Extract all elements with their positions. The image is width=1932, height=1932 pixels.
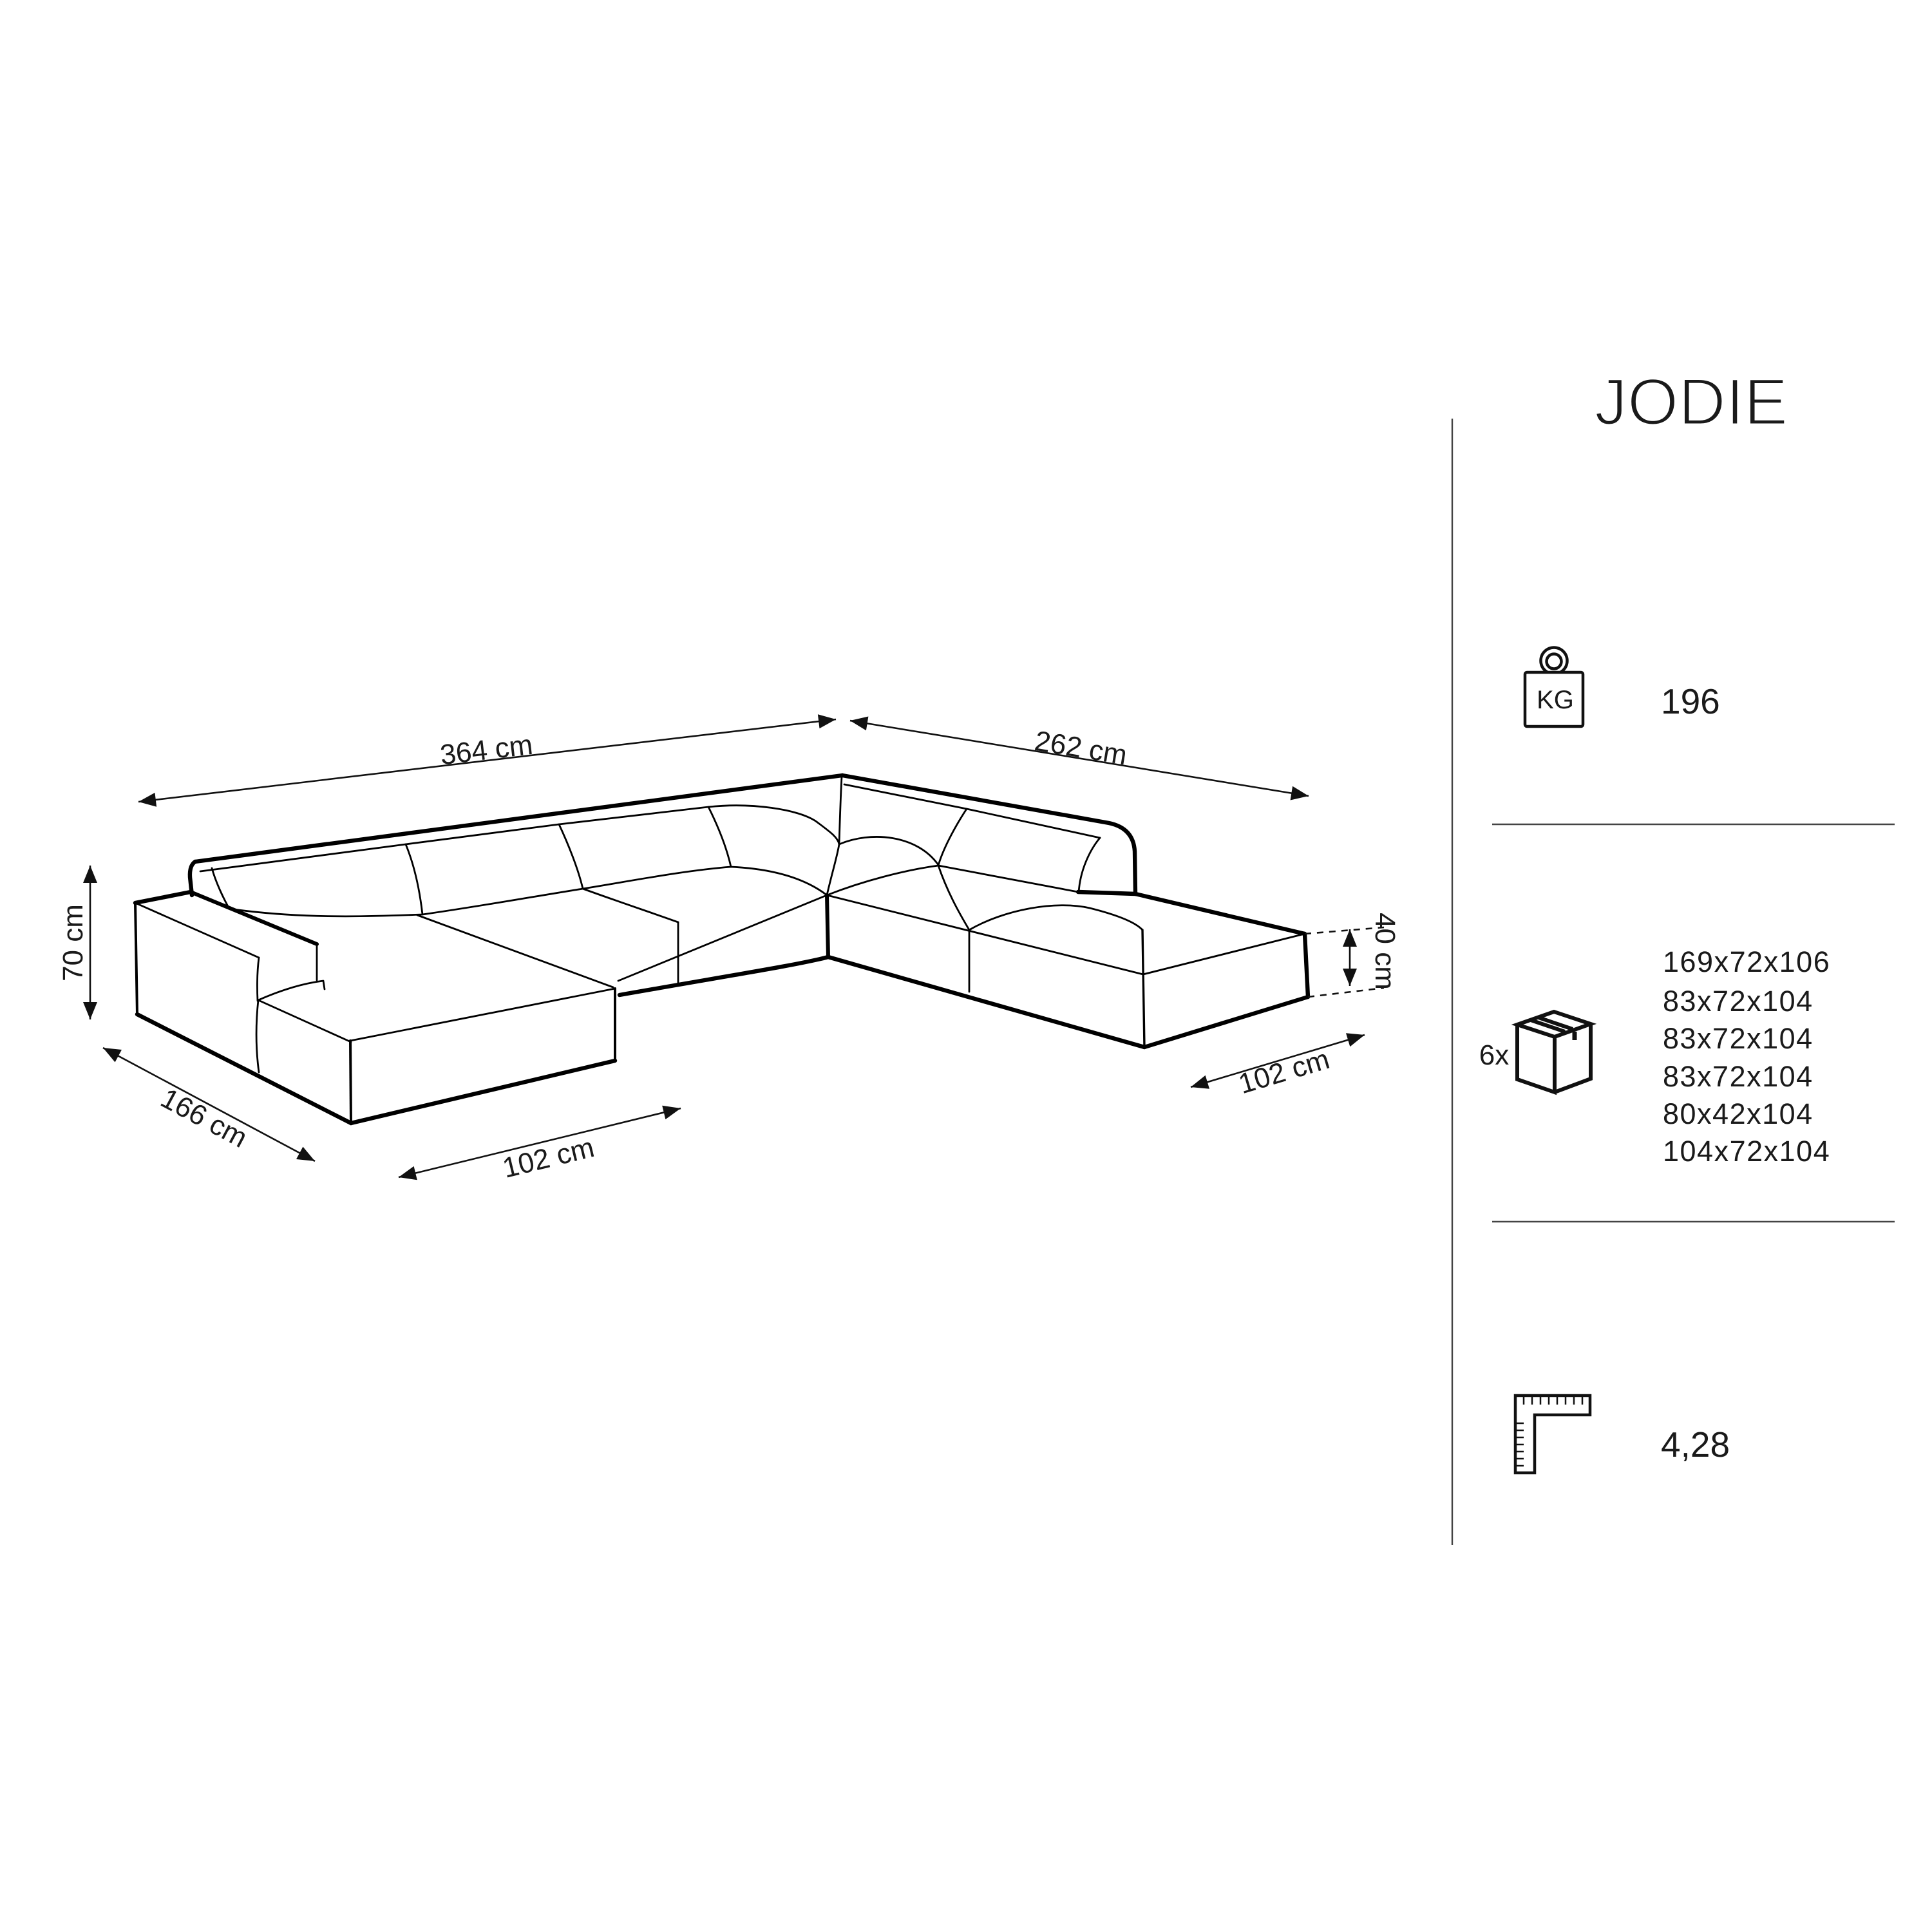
svg-text:83x72x104: 83x72x104 xyxy=(1663,1022,1814,1055)
svg-text:169x72x106: 169x72x106 xyxy=(1663,945,1830,978)
svg-text:70 cm: 70 cm xyxy=(57,904,89,981)
svg-text:KG: KG xyxy=(1537,686,1574,714)
svg-text:83x72x104: 83x72x104 xyxy=(1663,985,1814,1018)
svg-text:JODIE: JODIE xyxy=(1595,365,1788,439)
svg-text:4,28: 4,28 xyxy=(1661,1425,1730,1464)
svg-text:80x42x104: 80x42x104 xyxy=(1663,1097,1814,1130)
svg-text:6x: 6x xyxy=(1479,1039,1509,1071)
svg-text:40 cm: 40 cm xyxy=(1369,913,1401,990)
svg-text:83x72x104: 83x72x104 xyxy=(1663,1060,1814,1093)
svg-text:196: 196 xyxy=(1661,681,1720,721)
svg-text:104x72x104: 104x72x104 xyxy=(1663,1135,1830,1168)
